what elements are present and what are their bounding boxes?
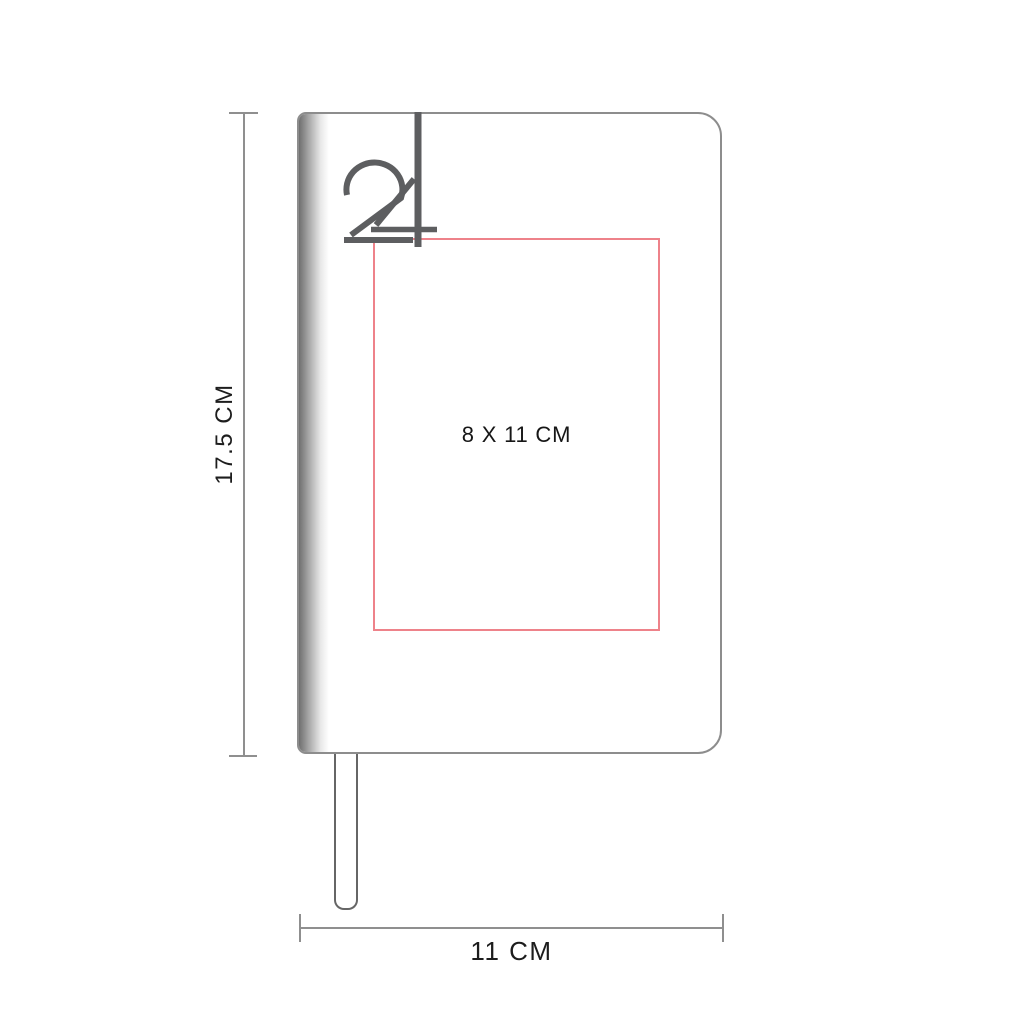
height-dimension-cap-bottom bbox=[229, 755, 257, 757]
logo-24-four-diagonal bbox=[376, 179, 414, 225]
height-dimension-label: 17.5 CM bbox=[210, 354, 240, 514]
print-area-box: 8 X 11 CM bbox=[373, 238, 660, 631]
height-dimension-line bbox=[243, 112, 245, 757]
bookmark-ribbon bbox=[334, 754, 358, 910]
width-dimension-tick-right bbox=[722, 914, 724, 942]
width-dimension-label: 11 CM bbox=[431, 936, 592, 966]
logo-24 bbox=[330, 108, 450, 258]
width-dimension-line bbox=[300, 927, 724, 929]
product-dimension-diagram: 17.5 CM 8 X 11 CM 11 CM bbox=[0, 0, 1024, 1024]
print-area-label: 8 X 11 CM bbox=[462, 422, 572, 448]
notebook-spine bbox=[299, 114, 329, 752]
